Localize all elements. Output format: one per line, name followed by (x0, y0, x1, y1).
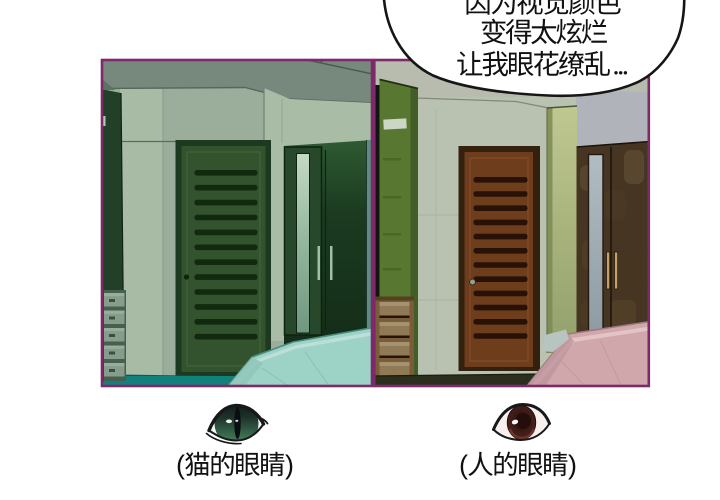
svg-text:): ) (568, 450, 577, 480)
svg-text:(: ( (459, 450, 468, 480)
svg-text:(: ( (176, 450, 185, 480)
svg-text:): ) (285, 450, 294, 480)
